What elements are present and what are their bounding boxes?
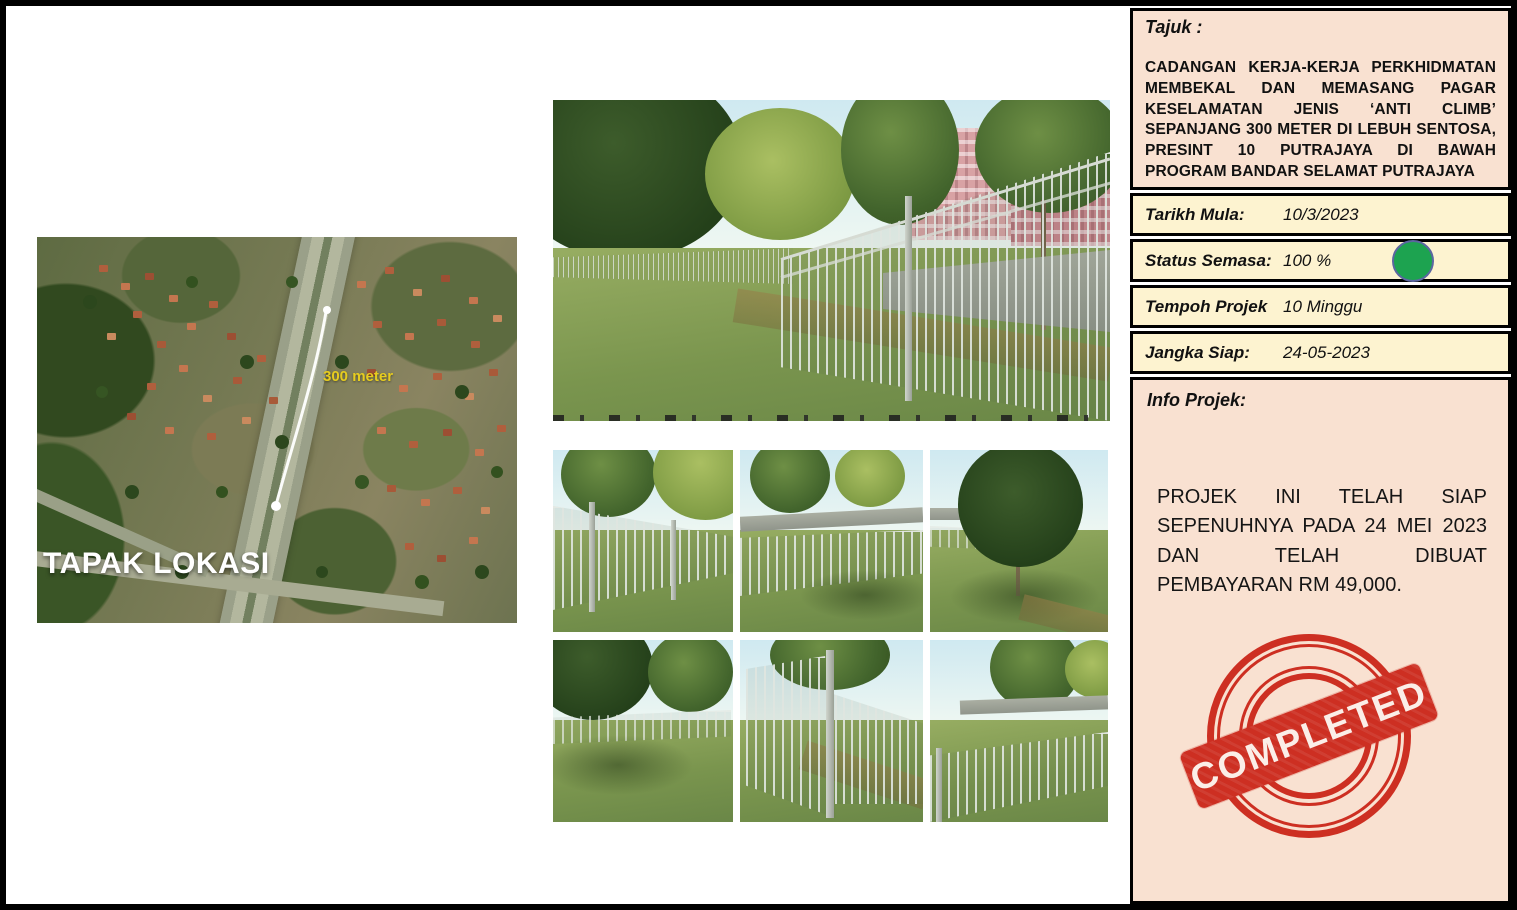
tree-shadow xyxy=(800,570,923,620)
photo-grid xyxy=(553,450,1108,822)
fence-post xyxy=(936,748,942,822)
main-fence-photo xyxy=(553,100,1110,421)
fence-photo-5 xyxy=(740,640,923,822)
distance-label: 300 meter xyxy=(323,368,393,385)
fence-post xyxy=(905,196,912,401)
field-label: Jangka Siap: xyxy=(1145,343,1283,363)
fence-post xyxy=(826,650,834,818)
field-label: Tarikh Mula: xyxy=(1145,205,1283,225)
field-label: Status Semasa: xyxy=(1145,251,1283,271)
status-indicator-green xyxy=(1392,240,1434,282)
field-value: 100 % xyxy=(1283,251,1331,271)
fence-post xyxy=(589,502,595,612)
tree-canopy xyxy=(705,108,855,240)
fence-photo-6 xyxy=(930,640,1108,822)
field-value: 24-05-2023 xyxy=(1283,343,1370,363)
project-info-panel: Tajuk : CADANGAN KERJA-KERJA PERKHIDMATA… xyxy=(1130,6,1511,904)
field-row-jangka-siap: Jangka Siap: 24-05-2023 xyxy=(1130,331,1511,374)
field-row-tarikh-mula: Tarikh Mula: 10/3/2023 xyxy=(1130,193,1511,236)
completed-stamp: COMPLETED xyxy=(1189,616,1429,856)
field-row-status-semasa: Status Semasa: 100 % xyxy=(1130,239,1511,282)
info-label: Info Projek: xyxy=(1147,390,1494,411)
title-box: Tajuk : CADANGAN KERJA-KERJA PERKHIDMATA… xyxy=(1130,8,1511,190)
field-label: Tempoh Projek xyxy=(1145,297,1283,317)
title-label: Tajuk : xyxy=(1145,17,1496,38)
field-value: 10 Minggu xyxy=(1283,297,1362,317)
field-row-tempoh-projek: Tempoh Projek 10 Minggu xyxy=(1130,285,1511,328)
fence-post xyxy=(671,520,676,600)
field-value: 10/3/2023 xyxy=(1283,205,1359,225)
fence-photo-2 xyxy=(740,450,923,632)
fence-photo-4 xyxy=(553,640,733,822)
info-text: PROJEK INI TELAH SIAP SEPENUHNYA PADA 24… xyxy=(1157,483,1487,601)
fence-photo-3 xyxy=(930,450,1108,632)
fence-photo-1 xyxy=(553,450,733,632)
info-box: Info Projek: PROJEK INI TELAH SIAP SEPEN… xyxy=(1130,377,1511,904)
location-map: 300 meter TAPAK LOKASI xyxy=(37,237,517,623)
project-title: CADANGAN KERJA-KERJA PERKHIDMATAN MEMBEK… xyxy=(1145,58,1496,183)
map-title: TAPAK LOKASI xyxy=(43,547,270,581)
cropped-caption-strip xyxy=(553,415,1110,421)
